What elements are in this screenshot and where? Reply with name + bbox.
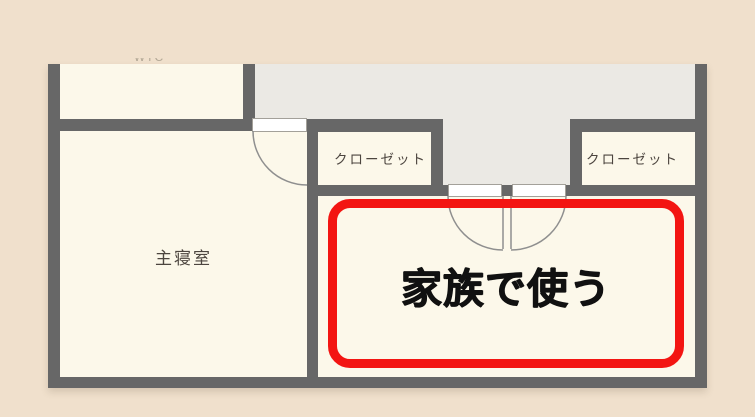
- wall-family-room-top-left-segment: [318, 185, 448, 196]
- hallway-center-area: [443, 120, 570, 185]
- door-opening-bedroom: [252, 118, 307, 132]
- wall-center-vertical: [307, 119, 318, 377]
- door-opening-family-left: [448, 184, 502, 197]
- wall-bedroom-top: [48, 119, 252, 131]
- wall-family-room-top-right-segment: [566, 185, 695, 196]
- closet-left-label: クローゼット: [318, 148, 443, 168]
- hallway-area: [255, 64, 695, 120]
- wall-outer-right: [695, 64, 707, 388]
- master-bedroom-label: 主寝室: [60, 244, 307, 269]
- wall-family-room-top-post: [502, 185, 512, 196]
- wall-outer-left: [48, 64, 60, 388]
- wall-closet-right-top: [570, 119, 695, 132]
- annotation-text: 家族で使う: [328, 266, 684, 312]
- wall-outer-bottom: [48, 377, 707, 388]
- cutoff-room-label: WIC: [131, 58, 169, 66]
- wall-closet-left-top: [318, 119, 443, 132]
- floorplan-image: WIC 主寝室 クローゼット クローゼット 家族で使う: [0, 0, 755, 417]
- closet-right-label: クローゼット: [570, 148, 695, 168]
- door-opening-family-right: [512, 184, 566, 197]
